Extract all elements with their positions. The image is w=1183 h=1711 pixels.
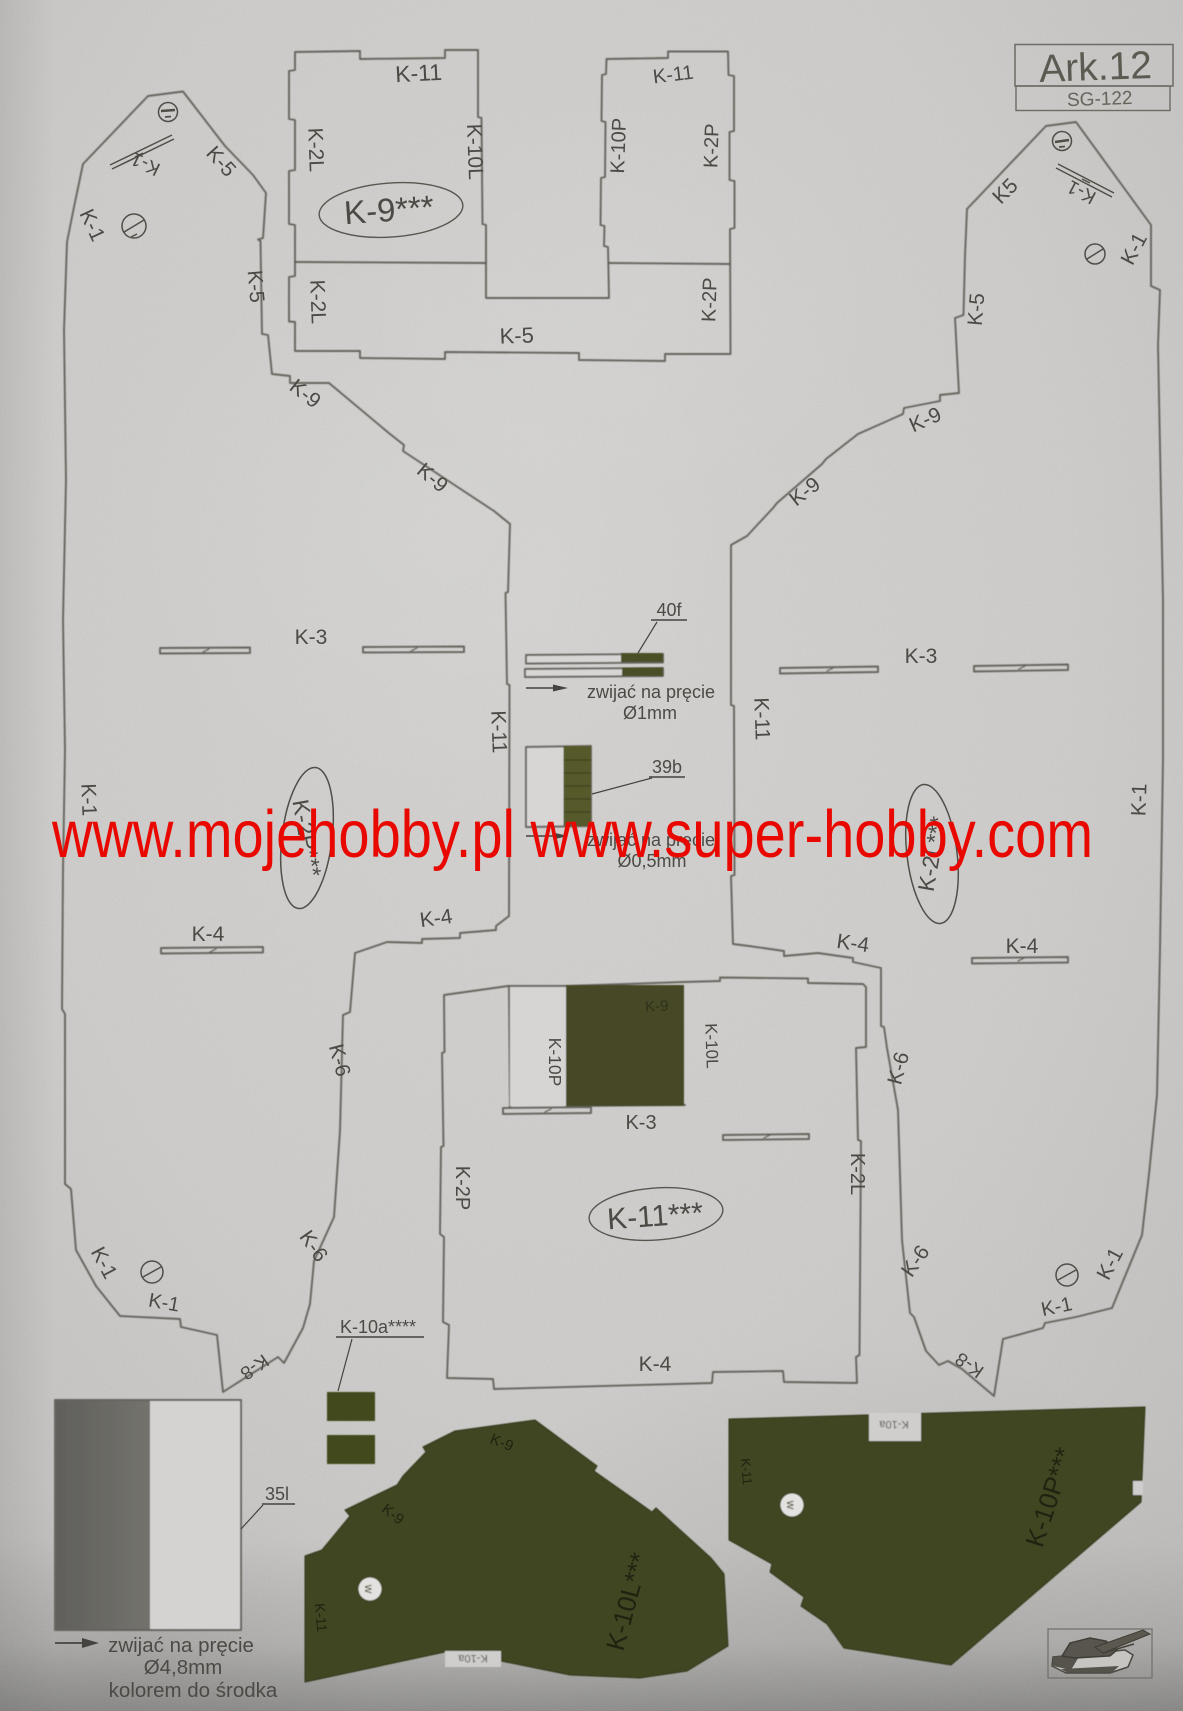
svg-text:K-2P: K-2P	[451, 1166, 473, 1210]
svg-text:K-4: K-4	[192, 923, 225, 946]
svg-text:K-5: K-5	[243, 269, 269, 304]
svg-text:K-10a: K-10a	[457, 1652, 487, 1664]
svg-text:K-3: K-3	[905, 645, 938, 668]
svg-text:K-3: K-3	[295, 626, 328, 649]
svg-text:K-11***: K-11***	[606, 1197, 705, 1237]
svg-text:K-4: K-4	[639, 1353, 672, 1376]
svg-text:kolorem do środka: kolorem do środka	[109, 1679, 278, 1702]
svg-text:K-4: K-4	[835, 930, 871, 957]
svg-text:K-11: K-11	[749, 697, 773, 741]
svg-text:K-1: K-1	[1127, 783, 1151, 816]
svg-text:K-10a: K-10a	[878, 1418, 908, 1430]
svg-text:K-2P: K-2P	[698, 277, 722, 322]
svg-text:K-2L: K-2L	[305, 279, 330, 324]
svg-text:K-2L: K-2L	[846, 1153, 868, 1195]
svg-text:39b: 39b	[652, 757, 682, 777]
svg-text:K-10P: K-10P	[545, 1038, 565, 1087]
svg-text:K-11: K-11	[486, 710, 510, 754]
svg-text:K-5: K-5	[499, 322, 534, 348]
svg-text:Ø1mm: Ø1mm	[623, 703, 677, 723]
svg-text:K-2L: K-2L	[303, 127, 328, 172]
svg-text:K-5: K-5	[964, 292, 990, 327]
svg-text:K-9: K-9	[645, 997, 669, 1015]
svg-text:w: w	[784, 1500, 798, 1510]
svg-text:zwijać na pręcie: zwijać na pręcie	[108, 1634, 254, 1657]
svg-text:K-4: K-4	[1006, 935, 1039, 958]
svg-text:K-11: K-11	[312, 1603, 330, 1633]
svg-text:K-10P: K-10P	[607, 118, 631, 174]
svg-text:K-11: K-11	[738, 1458, 755, 1486]
svg-text:40f: 40f	[656, 600, 682, 620]
svg-text:K-11: K-11	[394, 59, 442, 87]
svg-text:K-9***: K-9***	[343, 188, 435, 231]
svg-text:SG-122: SG-122	[1067, 88, 1133, 111]
svg-text:35l: 35l	[265, 1484, 289, 1504]
svg-text:www.mojehobby.pl www.super-hob: www.mojehobby.pl www.super-hobby.com	[51, 797, 1093, 872]
svg-text:K-10a****: K-10a****	[340, 1317, 416, 1337]
svg-text:K-10L: K-10L	[462, 123, 487, 180]
svg-text:Ark.12: Ark.12	[1038, 44, 1152, 91]
svg-text:w: w	[362, 1584, 376, 1594]
svg-text:K-3: K-3	[625, 1112, 656, 1134]
svg-text:Ø4,8mm: Ø4,8mm	[144, 1656, 223, 1679]
svg-text:K-4: K-4	[418, 905, 454, 932]
svg-text:K-2P: K-2P	[700, 123, 724, 168]
svg-text:K-10L: K-10L	[701, 1023, 722, 1069]
svg-text:zwijać na pręcie: zwijać na pręcie	[587, 682, 715, 702]
